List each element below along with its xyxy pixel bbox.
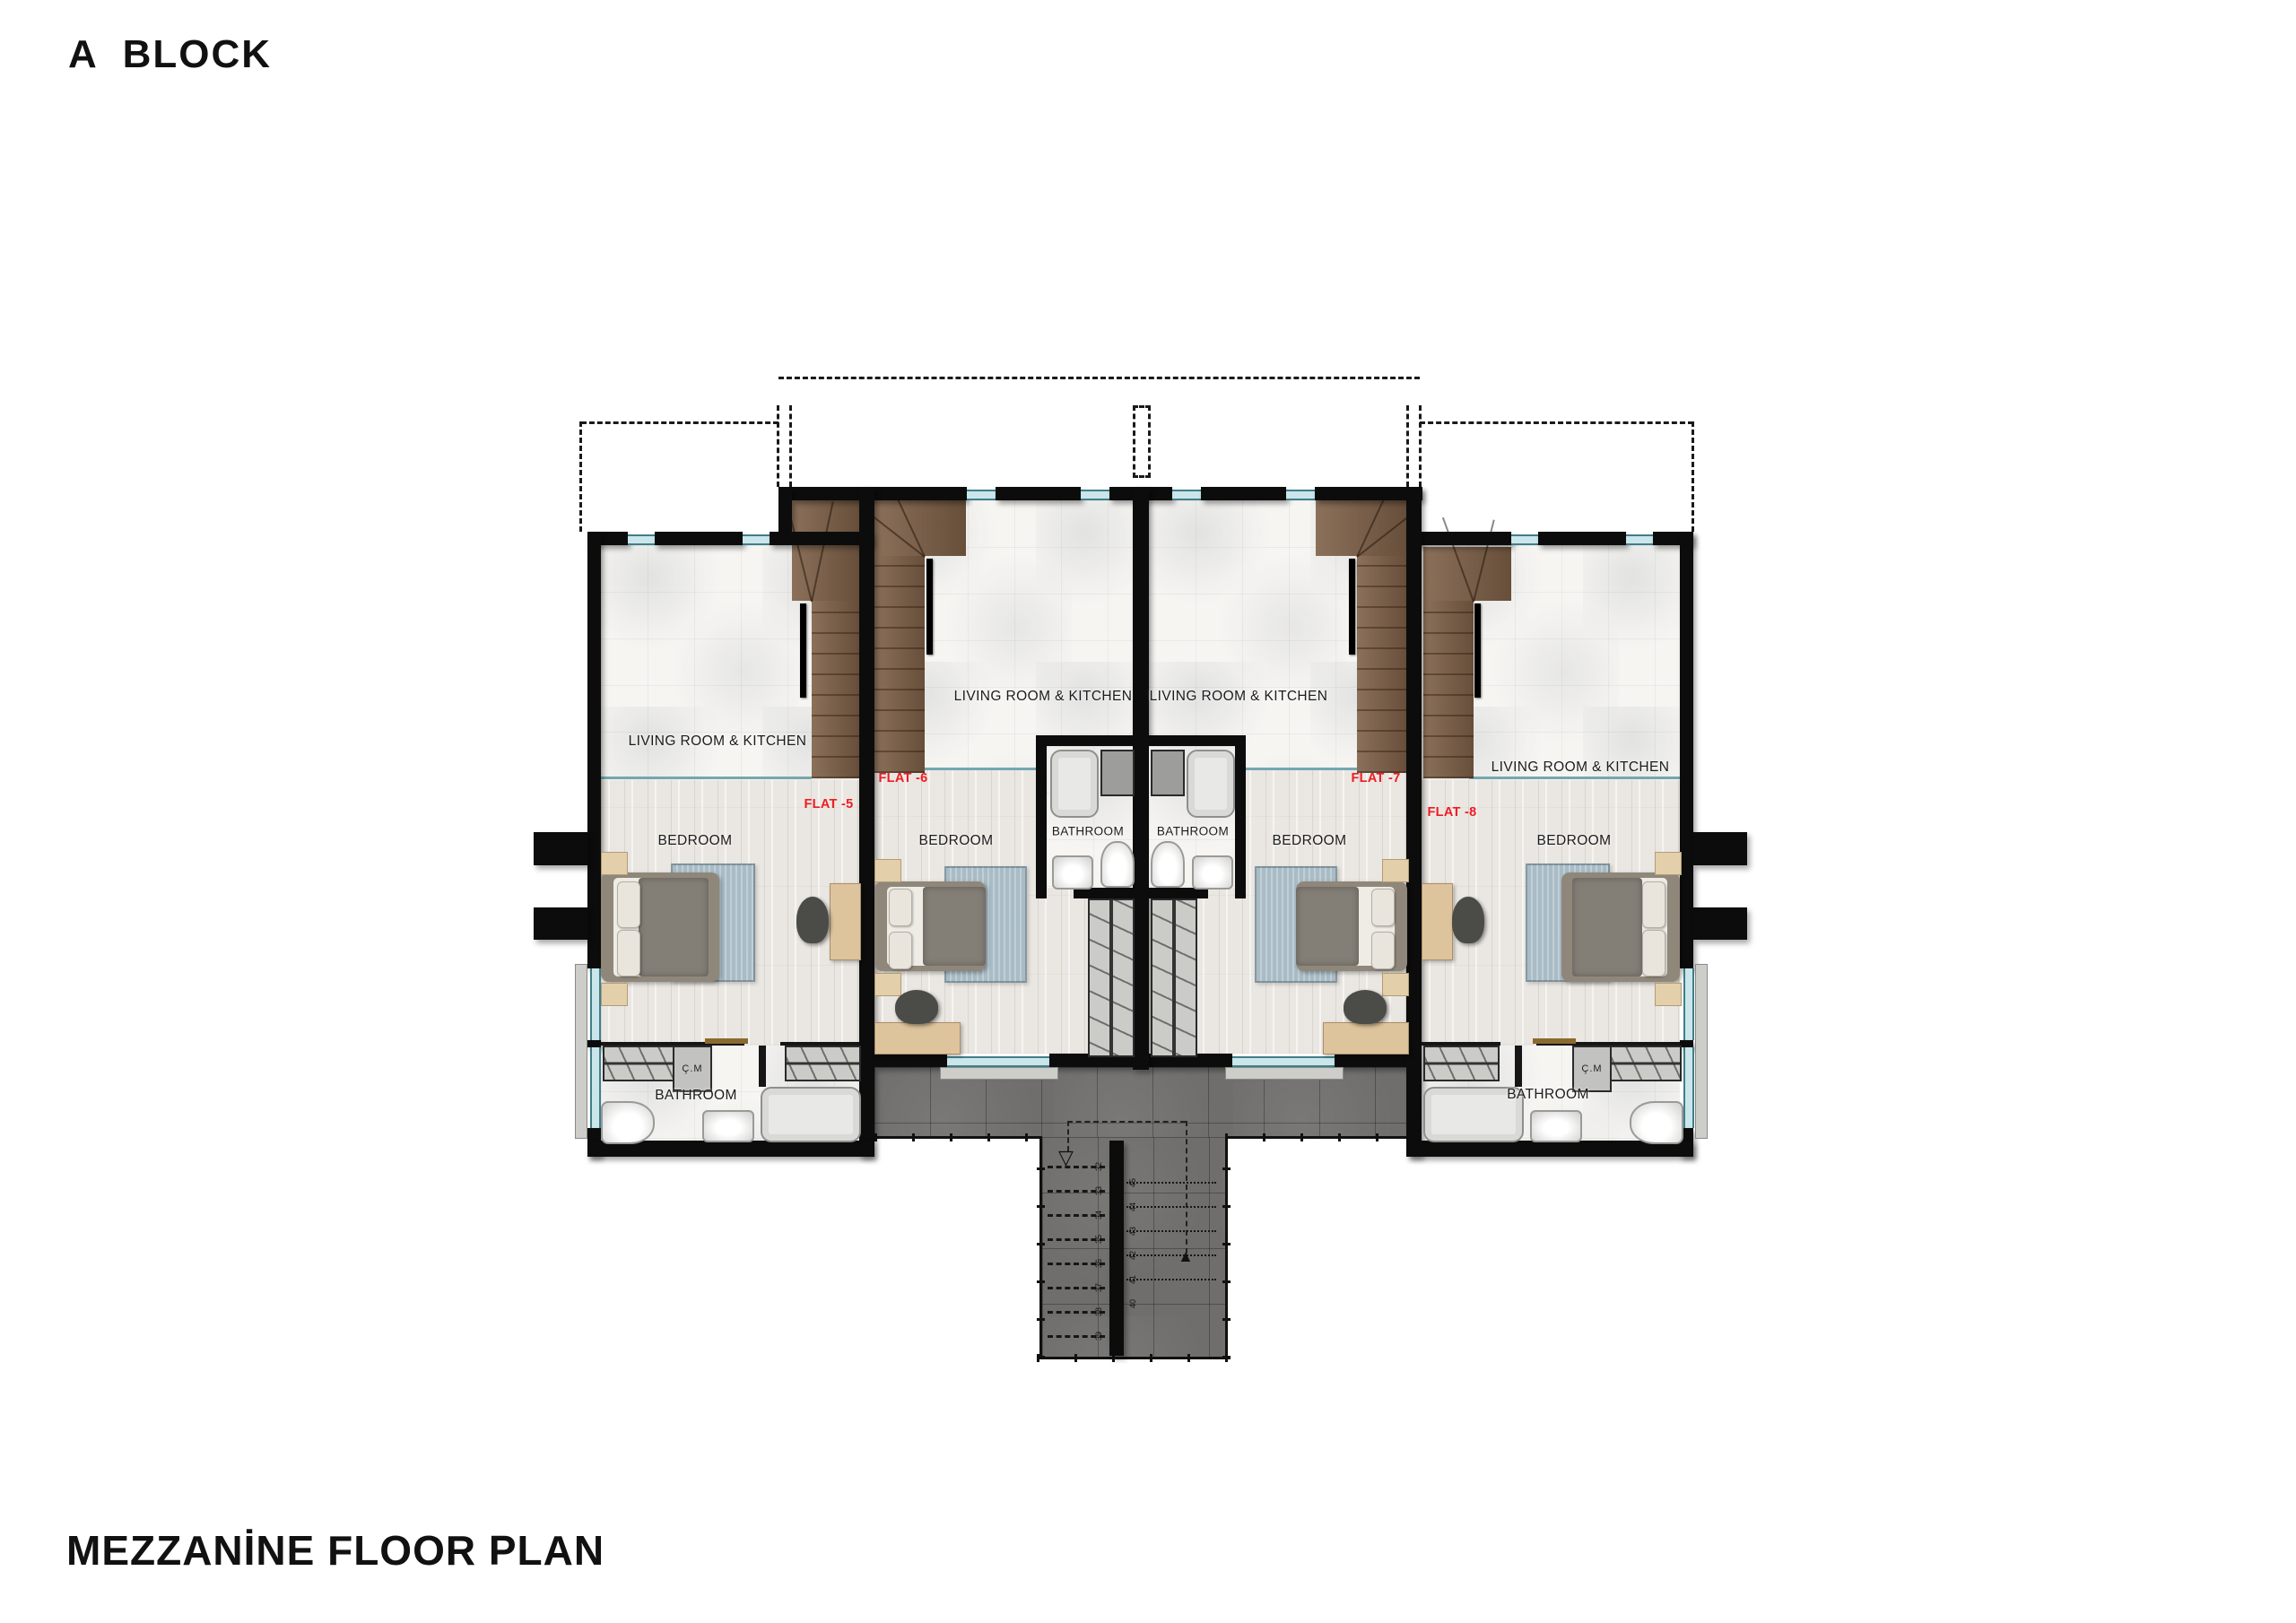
wing-wall-stub — [1693, 832, 1747, 865]
flat7-bed-blanket — [1296, 887, 1359, 966]
flat6-label: FLAT -6 — [879, 771, 928, 785]
step-number: 42 — [1128, 1251, 1137, 1260]
flat6-shaft — [1100, 750, 1135, 796]
stair-step-upper — [1126, 1254, 1216, 1256]
terrace-window-sill — [940, 1067, 1058, 1080]
stair-step-upper — [1126, 1279, 1216, 1280]
flat5-living-label: LIVING ROOM & KITCHEN — [629, 733, 807, 750]
flat5-bathroom-label: BATHROOM — [655, 1088, 737, 1104]
flat7-nightstand — [1382, 859, 1409, 882]
party-wall-6-7 — [1133, 487, 1149, 1070]
flat8-stair-flight — [1423, 601, 1474, 778]
flat7-shaft — [1151, 750, 1185, 796]
flat6-shower-tub — [1050, 750, 1099, 818]
front-wall-middle — [996, 487, 1081, 500]
window — [590, 968, 601, 1040]
block-title: A BLOCK — [68, 32, 272, 77]
step-number: 40 — [1128, 1299, 1137, 1308]
chimney-outline-right-a — [1406, 405, 1409, 487]
bump-side-wall — [778, 487, 792, 532]
stair-route-line — [1067, 1121, 1069, 1151]
flat8-bedroom-label: BEDROOM — [1537, 833, 1612, 849]
flat5-top-wall — [770, 532, 873, 545]
flat8-bathroom-label: BATHROOM — [1507, 1087, 1589, 1103]
flat7-bedroom-label: BEDROOM — [1273, 833, 1347, 849]
washer-label: Ç.M — [1581, 1063, 1602, 1074]
flat6-toilet — [1100, 841, 1135, 888]
flat5-left-wall — [587, 1040, 601, 1047]
stairwell-center-wall — [1109, 1141, 1124, 1356]
plan-title: MEZZANİNE FLOOR PLAN — [66, 1526, 604, 1575]
flat5-nightstand — [601, 852, 628, 875]
flat8-living-label: LIVING ROOM & KITCHEN — [1492, 759, 1670, 776]
flat5-left-wall — [587, 532, 601, 968]
front-wall-middle — [1201, 487, 1286, 500]
flat7-wardrobe — [1151, 898, 1197, 1057]
flat7-nightstand — [1382, 973, 1409, 996]
stair-step-upper — [1126, 1182, 1216, 1184]
terrace-window — [1232, 1056, 1335, 1067]
stair-route-line — [1067, 1121, 1186, 1123]
window-sill — [1695, 964, 1708, 1139]
flat6-bathroom-label: BATHROOM — [1052, 825, 1124, 838]
flat5-pillow — [617, 930, 640, 976]
flat6-desk — [874, 1022, 961, 1055]
stairwell-edge-right — [1222, 1137, 1231, 1358]
roof-outline-top — [778, 377, 1420, 379]
flat6-bedroom-label: BEDROOM — [919, 833, 994, 849]
step-number: 39 — [1094, 1332, 1103, 1341]
window — [1511, 534, 1538, 545]
flat5-toilet — [601, 1101, 655, 1144]
terrace-window — [947, 1056, 1049, 1067]
flat8-stair-railing — [1474, 603, 1481, 698]
flat8-washer-closet: Ç.M — [1572, 1046, 1612, 1092]
terrace-edge-right — [1225, 1133, 1406, 1141]
flat7-bottom-wall — [1335, 1054, 1407, 1067]
step-number: 33 — [1094, 1186, 1103, 1195]
flat5-bathroom-door — [705, 1038, 748, 1044]
flat8-pillow — [1642, 930, 1665, 976]
window — [590, 1047, 601, 1128]
flat8-wardrobe — [1423, 1046, 1500, 1081]
flat5-bathtub — [761, 1087, 861, 1142]
step-number: 34 — [1094, 1211, 1103, 1219]
flat8-top-wall — [1408, 532, 1511, 545]
flat5-room-divider — [601, 777, 812, 779]
flat7-bath-wall — [1235, 746, 1246, 898]
chimney-outline-right-b — [1419, 405, 1422, 487]
flat8-label: FLAT -8 — [1428, 805, 1477, 820]
flat5-bath-wall — [759, 1046, 766, 1087]
window — [628, 534, 655, 545]
flat5-desk — [830, 883, 861, 960]
window — [1081, 490, 1109, 500]
flat6-wardrobe — [1088, 898, 1135, 1057]
flat6-sink — [1052, 855, 1093, 890]
stair-direction-start-icon: ▽ — [1058, 1148, 1074, 1167]
flat6-pillow — [889, 932, 912, 969]
roof-outline-left — [581, 421, 778, 424]
window — [1286, 490, 1315, 500]
flat7-desk — [1323, 1022, 1409, 1055]
flat8-desk — [1422, 883, 1453, 960]
step-number: 45 — [1128, 1178, 1137, 1187]
flat5-sink — [702, 1110, 754, 1142]
flat8-bath-wall — [1515, 1046, 1522, 1087]
roof-outline-right — [1420, 421, 1693, 424]
wing-wall-stub — [534, 907, 587, 940]
flat7-sink — [1192, 855, 1233, 890]
wing-wall-stub — [1693, 907, 1747, 940]
flat6-nightstand — [874, 859, 901, 882]
roof-outline-right-edge — [1692, 421, 1694, 532]
flat5-top-wall — [655, 532, 743, 545]
flat8-right-wall — [1680, 532, 1693, 968]
step-number: 37 — [1094, 1283, 1103, 1292]
flat6-bath-wall — [1036, 746, 1047, 898]
flat8-right-wall — [1680, 1040, 1693, 1047]
party-wall-5-6 — [859, 487, 874, 1157]
flat7-stair-railing — [1349, 559, 1355, 655]
window — [1172, 490, 1201, 500]
window — [1683, 968, 1694, 1040]
floor-plan-canvas: A BLOCK MEZZANİNE FLOOR PLAN — [0, 0, 2296, 1623]
flat8-chair — [1452, 897, 1484, 943]
stairwell-edge-bottom — [1037, 1354, 1231, 1362]
flat7-bath-wall — [1149, 735, 1246, 746]
flat6-stair-railing — [926, 559, 933, 655]
flat5-chair — [796, 897, 829, 943]
stair-route-line — [1186, 1121, 1187, 1254]
flat8-toilet — [1630, 1101, 1683, 1144]
chimney-outline-left-b — [789, 405, 792, 487]
flat8-pillow — [1642, 881, 1665, 928]
flat7-bathroom-label: BATHROOM — [1157, 825, 1229, 838]
flat5-pillow — [617, 881, 640, 928]
flat6-room-divider — [925, 768, 1041, 770]
flat8-room-divider — [1469, 777, 1680, 779]
stair-step-upper — [1126, 1206, 1216, 1208]
front-wall-middle — [792, 487, 967, 500]
flat6-bed-blanket — [923, 887, 986, 966]
flat7-room-divider — [1240, 768, 1357, 770]
step-number: 36 — [1094, 1259, 1103, 1268]
terrace-edge-left — [874, 1133, 1042, 1141]
step-number: 44 — [1128, 1202, 1137, 1211]
flat6-bottom-wall — [874, 1054, 947, 1067]
flat8-wardrobe — [1610, 1046, 1682, 1081]
flat8-bathroom-door — [1533, 1038, 1576, 1044]
flat5-wardrobe — [603, 1046, 674, 1081]
flat8-stair-winders — [1423, 547, 1511, 601]
window — [1626, 534, 1653, 545]
flat8-nightstand — [1655, 852, 1682, 875]
washer-label: Ç.M — [682, 1063, 702, 1074]
flat5-stair-winders — [792, 500, 859, 601]
step-number: 43 — [1128, 1227, 1137, 1236]
flat8-bed-blanket — [1572, 878, 1642, 976]
flat8-sink — [1530, 1110, 1582, 1142]
flat7-living-label: LIVING ROOM & KITCHEN — [1150, 689, 1328, 705]
flat5-nightstand — [601, 983, 628, 1006]
stairwell — [1042, 1137, 1225, 1358]
flat6-nightstand — [874, 973, 901, 996]
flat8-nightstand — [1655, 983, 1682, 1006]
flat7-toilet — [1151, 841, 1185, 888]
step-number: 41 — [1128, 1275, 1137, 1284]
flat7-stair-flight — [1357, 556, 1407, 773]
step-number: 38 — [1094, 1307, 1103, 1316]
flat6-living-label: LIVING ROOM & KITCHEN — [954, 689, 1133, 705]
flat5-stair-flight — [812, 601, 859, 778]
flat7-label: FLAT -7 — [1352, 771, 1401, 785]
flat7-pillow — [1371, 932, 1395, 969]
roof-outline-left-edge — [579, 421, 582, 532]
flat6-bath-wall — [1036, 735, 1133, 746]
flat6-pillow — [889, 889, 912, 926]
flat7-shower-tub — [1187, 750, 1235, 818]
party-wall-7-8 — [1406, 487, 1422, 1157]
chimney-outline-center — [1133, 405, 1151, 478]
window — [1683, 1047, 1694, 1128]
stair-direction-end-icon: ▲ — [1178, 1248, 1194, 1264]
terrace-window-sill — [1225, 1067, 1344, 1080]
flat6-chair — [895, 990, 938, 1024]
chimney-outline-left-a — [777, 405, 779, 487]
flat5-bed-blanket — [639, 878, 709, 976]
step-number: 32 — [1094, 1162, 1103, 1171]
flat5-stair-railing — [800, 603, 806, 698]
window — [967, 490, 996, 500]
flat5-bedroom-label: BEDROOM — [658, 833, 733, 849]
flat7-pillow — [1371, 889, 1395, 926]
flat6-stair-flight — [874, 556, 925, 773]
wing-wall-stub — [534, 832, 587, 865]
flat5-wardrobe — [785, 1046, 861, 1081]
flat5-label: FLAT -5 — [804, 797, 854, 811]
flat7-chair — [1344, 990, 1387, 1024]
window-sill — [575, 964, 587, 1139]
flat5-washer-closet: Ç.M — [673, 1046, 712, 1092]
flat8-top-wall — [1538, 532, 1626, 545]
stairwell-edge-left — [1037, 1137, 1045, 1358]
window — [743, 534, 770, 545]
step-number: 35 — [1094, 1235, 1103, 1244]
stair-step-upper — [1126, 1230, 1216, 1232]
